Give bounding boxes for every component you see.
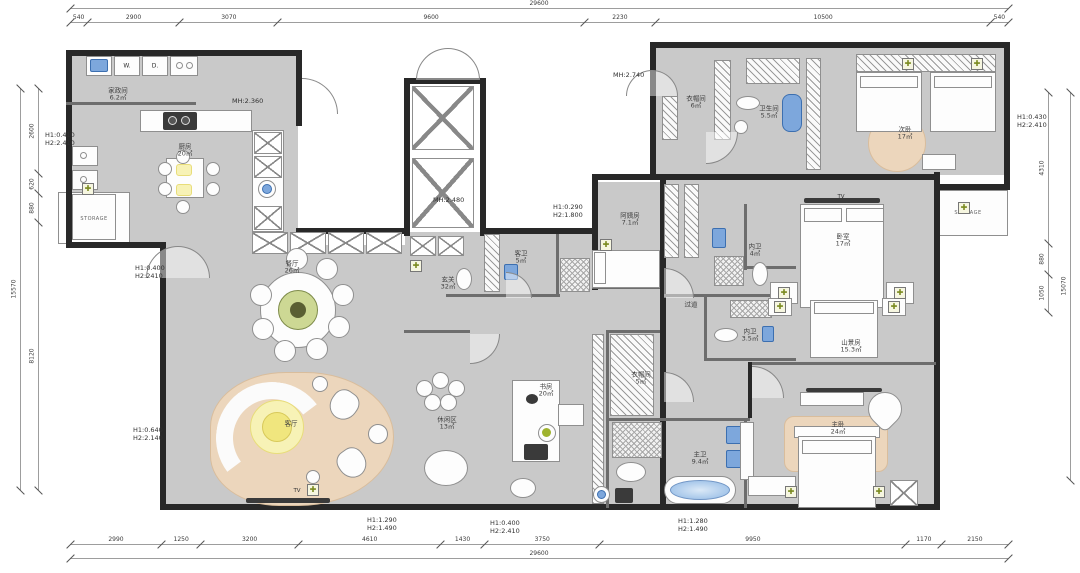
- dimension-label: 15570: [11, 279, 18, 298]
- dimension-line: [1070, 92, 1071, 480]
- dimension-label: 1430: [455, 536, 470, 543]
- floor-plan-canvas: 家政间6.2㎡厨房20㎡餐厅26㎡客厅休闲区13㎡玄关32㎡客卫5㎡阿姨房7.1…: [0, 0, 1080, 573]
- dimension-label: 3200: [242, 536, 257, 543]
- dimension-line: [1048, 92, 1049, 312]
- dimension-label: 8120: [29, 349, 36, 364]
- dimension-label: 9950: [745, 536, 760, 543]
- dimension-label: 15070: [1061, 276, 1068, 295]
- dimension-line: [38, 88, 39, 490]
- dimension-label: 29600: [529, 0, 548, 7]
- dimension-label: 1170: [916, 536, 931, 543]
- dimension-label: 1050: [1039, 286, 1046, 301]
- dimension-label: 2990: [108, 536, 123, 543]
- dimension-label: 620: [29, 178, 36, 189]
- dimension-label: 1250: [174, 536, 189, 543]
- dimension-line: [70, 8, 1008, 9]
- dimension-line: [70, 544, 1008, 545]
- dimension-layer: 2960054029003070960022301050054029901250…: [0, 0, 1080, 573]
- dimension-line: [70, 22, 1008, 23]
- dimension-label: 2150: [967, 536, 982, 543]
- dimension-label: 2230: [612, 14, 627, 21]
- dimension-label: 3750: [535, 536, 550, 543]
- dimension-label: 880: [29, 203, 36, 214]
- dimension-label: 880: [1039, 254, 1046, 265]
- dimension-line: [70, 558, 1008, 559]
- dimension-label: 4310: [1039, 160, 1046, 175]
- dimension-label: 29600: [529, 550, 548, 557]
- dimension-label: 540: [73, 14, 84, 21]
- dimension-label: 4610: [362, 536, 377, 543]
- dimension-label: 2900: [126, 14, 141, 21]
- dimension-label: 10500: [814, 14, 833, 21]
- dimension-line: [20, 88, 21, 490]
- dimension-label: 2600: [29, 123, 36, 138]
- dimension-label: 3070: [221, 14, 236, 21]
- dimension-label: 540: [994, 14, 1005, 21]
- dimension-label: 9600: [423, 14, 438, 21]
